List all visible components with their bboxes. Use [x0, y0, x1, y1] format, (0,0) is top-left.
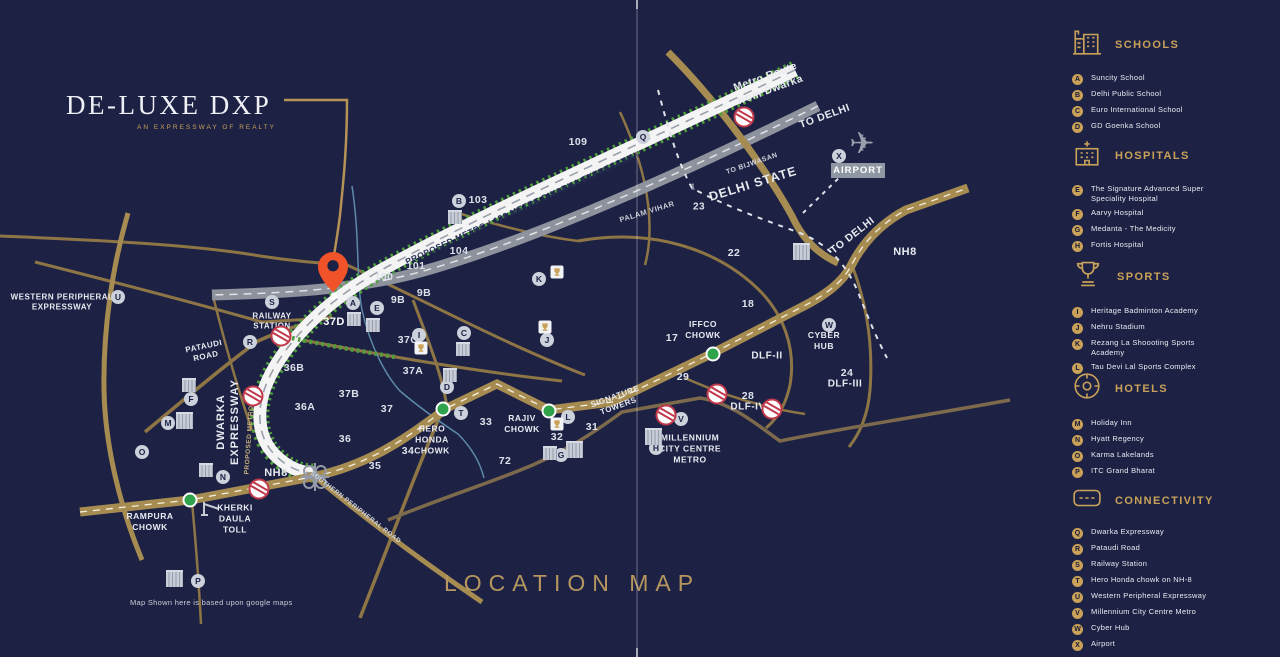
legend-title: CONNECTIVITY	[1115, 495, 1214, 507]
legend-item-label: Heritage Badminton Academy	[1091, 306, 1198, 316]
sector-label: 18	[742, 298, 754, 310]
map-marker: M	[161, 416, 175, 430]
western-peripheral-label: WESTERN PERIPHERAL EXPRESSWAY	[11, 293, 114, 314]
legend-key-badge: O	[1072, 451, 1083, 462]
legend-item: EThe Signature Advanced Super Speciality…	[1072, 184, 1272, 204]
legend-item-label: Delhi Public School	[1091, 89, 1161, 99]
legend-item-label: Railway Station	[1091, 559, 1147, 569]
legend-key-badge: I	[1072, 307, 1083, 318]
legend-item: OKarma Lakelands	[1072, 450, 1272, 462]
dlf2-label: DLF-II	[751, 350, 782, 363]
building-icon	[456, 342, 470, 356]
trophy-icon	[1072, 259, 1104, 294]
legend-key-badge: G	[1072, 225, 1083, 236]
legend-item-label: Karma Lakelands	[1091, 450, 1154, 460]
legend-key-badge: W	[1072, 624, 1083, 635]
sector-label: 17	[666, 332, 678, 344]
legend-item: ASuncity School	[1072, 73, 1272, 85]
building-icon	[347, 312, 361, 326]
sector-label: 36	[339, 433, 351, 445]
legend-section-hospitals: HOSPITALS EThe Signature Advanced Super …	[1072, 139, 1272, 256]
legend-item: SRailway Station	[1072, 559, 1272, 571]
map-marker: D	[440, 380, 454, 394]
legend-item-label: Airport	[1091, 639, 1115, 649]
legend-item: RPataudi Road	[1072, 543, 1272, 555]
pataudi-road-label: PATAUDI ROAD	[185, 338, 226, 366]
dlf4-label: DLF-IV	[730, 401, 765, 414]
map-marker: O	[135, 445, 149, 459]
fold-tick	[636, 0, 638, 9]
legend-title: SCHOOLS	[1115, 39, 1179, 51]
sector-label: 35	[369, 460, 381, 472]
legend-item: GMedanta - The Medicity	[1072, 224, 1272, 236]
airplane-icon: ✈	[849, 127, 874, 162]
page-title: LOCATION MAP	[444, 570, 700, 597]
legend-item-label: Western Peripheral Expressway	[1091, 591, 1206, 601]
sector-label: 32	[551, 431, 563, 443]
trophy-icon	[551, 418, 564, 431]
kherki-daula-toll-label: KHERKI DAULA TOLL	[217, 502, 253, 535]
sector-label: 9B	[391, 294, 405, 306]
legend-section-connectivity: CONNECTIVITY QDwarka Expressway RPataudi…	[1072, 486, 1272, 655]
sector-label: 37A	[403, 365, 423, 377]
legend-title: SPORTS	[1117, 271, 1171, 283]
building-icon	[366, 318, 380, 332]
expressway-banner-label: PROPOSED METRO / 150 METRE DWARKA EXPRES…	[404, 148, 642, 267]
pin-sector-label: 37D	[323, 316, 344, 328]
map-marker: S	[265, 295, 279, 309]
sector-label: 24	[841, 367, 853, 379]
dlf3-label: DLF-III	[828, 378, 863, 391]
building-icon	[443, 368, 457, 382]
crossing-icon	[243, 386, 264, 407]
trophy-icon	[551, 266, 564, 279]
legend-item: CEuro International School	[1072, 105, 1272, 117]
crossing-icon	[271, 326, 292, 347]
legend-item: PITC Grand Bharat	[1072, 466, 1272, 478]
building-icon	[448, 210, 462, 224]
map-marker: N	[216, 470, 230, 484]
legend-title: HOTELS	[1115, 383, 1168, 395]
legend-item-label: Millennium City Centre Metro	[1091, 607, 1196, 617]
dwarka-expressway-label-2: EXPRESSWAY	[228, 379, 242, 465]
legend-item: XAirport	[1072, 639, 1272, 651]
building-icon	[566, 441, 583, 458]
legend-item-label: Euro International School	[1091, 105, 1183, 115]
chowk-dot	[542, 404, 557, 419]
legend-key-badge: H	[1072, 241, 1083, 252]
legend-item-label: GD Goenka School	[1091, 121, 1160, 131]
building-icon	[793, 243, 810, 260]
sector-label: 37	[381, 403, 393, 415]
building-icon	[199, 463, 213, 477]
legend-key-badge: Q	[1072, 528, 1083, 539]
map-marker: X	[832, 149, 846, 163]
legend-key-badge: U	[1072, 592, 1083, 603]
legend-item: BDelhi Public School	[1072, 89, 1272, 101]
sector-label: 9B	[417, 287, 431, 299]
building-icon	[645, 428, 662, 445]
hero-honda-chowk-label: HERO HONDA CHOWK	[414, 423, 450, 456]
sector-label: 34	[402, 445, 414, 457]
rajiv-chowk-label: RAJIV CHOWK	[504, 413, 540, 435]
sector-label: 72	[499, 455, 511, 467]
sector-label: 104	[450, 245, 469, 257]
palam-vihar-label: PALAM VIHAR	[618, 199, 675, 225]
to-delhi-gray-label: TO DELHI	[798, 102, 852, 133]
map-marker: U	[111, 290, 125, 304]
legend-title: HOSPITALS	[1115, 150, 1190, 162]
legend-key-badge: C	[1072, 106, 1083, 117]
cyber-hub-label: CYBER HUB	[808, 330, 840, 352]
map-marker: P	[191, 574, 205, 588]
legend-item: QDwarka Expressway	[1072, 527, 1272, 539]
legend-item-label: Dwarka Expressway	[1091, 527, 1164, 537]
trophy-icon	[539, 321, 552, 334]
page-fold-line	[636, 0, 638, 657]
legend-section-sports: SPORTS IHeritage Badminton Academy JNehr…	[1072, 259, 1272, 378]
legend-key-badge: P	[1072, 467, 1083, 478]
legend-section-schools: SCHOOLS ASuncity School BDelhi Public Sc…	[1072, 28, 1272, 137]
crossing-icon	[762, 399, 783, 420]
legend-item-label: Holiday Inn	[1091, 418, 1132, 428]
sector-label: 29	[677, 371, 689, 383]
trophy-icon	[415, 342, 428, 355]
sector-label: 22	[728, 247, 740, 259]
map-marker: W	[822, 318, 836, 332]
building-icon	[166, 570, 183, 587]
rampura-chowk-label: RAMPURA CHOWK	[127, 511, 174, 533]
legend-key-badge: K	[1072, 339, 1083, 350]
map-marker: E	[370, 301, 384, 315]
legend-key-badge: N	[1072, 435, 1083, 446]
chowk-dot	[183, 493, 198, 508]
legend-item: FAarvy Hospital	[1072, 208, 1272, 220]
fold-tick	[636, 648, 638, 657]
map-marker: J	[540, 333, 554, 347]
dwarka-expressway-label-1: DWARKA	[214, 394, 228, 450]
legend-item: MHoliday Inn	[1072, 418, 1272, 430]
legend-item-label: Suncity School	[1091, 73, 1145, 83]
legend-key-badge: B	[1072, 90, 1083, 101]
legend-item-label: Hyatt Regency	[1091, 434, 1144, 444]
sector-label: 33	[480, 416, 492, 428]
school-building-icon	[1072, 28, 1102, 61]
brand-title: DE-LUXE DXP	[66, 90, 276, 121]
map-marker: F	[184, 392, 198, 406]
legend-item-label: Rezang La Shoooting Sports Academy	[1091, 338, 1221, 358]
sector-label: 31	[586, 421, 598, 433]
legend-item: UWestern Peripheral Expressway	[1072, 591, 1272, 603]
legend-item-label: Nehru Stadium	[1091, 322, 1145, 332]
legend-item: VMillennium City Centre Metro	[1072, 607, 1272, 619]
legend-item: KRezang La Shoooting Sports Academy	[1072, 338, 1272, 358]
nh8-delhi-label: NH8	[893, 245, 917, 259]
map-marker: C	[457, 326, 471, 340]
legend-key-badge: F	[1072, 209, 1083, 220]
sector-label: 36A	[295, 401, 315, 413]
legend-item-label: The Signature Advanced Super Speciality …	[1091, 184, 1221, 204]
legend-item: NHyatt Regency	[1072, 434, 1272, 446]
sector-label: 37B	[339, 388, 359, 400]
chowk-dot	[706, 347, 721, 362]
legend-key-badge: T	[1072, 576, 1083, 587]
legend-item: IHeritage Badminton Academy	[1072, 306, 1272, 318]
crossing-icon	[249, 479, 270, 500]
sector-label: 23	[693, 202, 705, 213]
legend-item: DGD Goenka School	[1072, 121, 1272, 133]
sector-label: 109	[569, 136, 588, 148]
sector-label: 103	[469, 194, 488, 206]
legend-item: HFortis Hospital	[1072, 240, 1272, 252]
legend-item-label: Medanta - The Medicity	[1091, 224, 1176, 234]
legend-key-badge: X	[1072, 640, 1083, 651]
legend-key-badge: E	[1072, 185, 1083, 196]
millennium-metro-label: MILLENNIUM CITY CENTRE METRO	[659, 432, 721, 465]
building-icon	[543, 446, 557, 460]
map-marker: A	[346, 296, 360, 310]
metro-route-label: Metro Route from Dwarka	[731, 59, 805, 108]
legend-item-label: Pataudi Road	[1091, 543, 1140, 553]
sector-label: 36B	[284, 362, 304, 374]
legend-key-badge: M	[1072, 419, 1083, 430]
map-marker: I	[412, 328, 426, 342]
legend-key-badge: D	[1072, 122, 1083, 133]
iffco-chowk-label: IFFCO CHOWK	[685, 319, 721, 341]
legend-item: JNehru Stadium	[1072, 322, 1272, 334]
map-marker: B	[452, 194, 466, 208]
sector-label: 1	[691, 183, 696, 192]
map-disclaimer: Map Shown here is based upon google maps	[130, 598, 293, 607]
building-icon	[182, 378, 196, 392]
legend-section-hotels: HOTELS MHoliday Inn NHyatt Regency OKarm…	[1072, 371, 1272, 482]
nh8-toll-label: NH8	[264, 466, 288, 480]
crossing-icon	[656, 405, 677, 426]
map-marker: K	[532, 272, 546, 286]
sector-label: 100	[375, 271, 394, 283]
legend-item: THero Honda chowk on NH-8	[1072, 575, 1272, 587]
crossing-icon	[734, 107, 755, 128]
hotel-compass-icon	[1072, 371, 1102, 406]
map-marker: T	[454, 406, 468, 420]
legend-item-label: Aarvy Hospital	[1091, 208, 1144, 218]
legend-key-badge: S	[1072, 560, 1083, 571]
road-icon	[1072, 486, 1102, 515]
legend-item-label: Fortis Hospital	[1091, 240, 1143, 250]
legend-item-label: Cyber Hub	[1091, 623, 1130, 633]
legend-key-badge: V	[1072, 608, 1083, 619]
map-marker: R	[243, 335, 257, 349]
southern-peripheral-label: SOUTHERN PERIPHERAL ROAD	[308, 470, 402, 546]
legend-item: WCyber Hub	[1072, 623, 1272, 635]
crossing-icon	[707, 384, 728, 405]
legend-item-label: ITC Grand Bharat	[1091, 466, 1155, 476]
proposed-metro-label: PROPOSED METRO	[243, 405, 256, 475]
legend-key-badge: R	[1072, 544, 1083, 555]
pin-ground-dot	[331, 293, 338, 300]
sector-label: 101	[407, 260, 426, 272]
brand-logo: DE-LUXE DXP AN EXPRESSWAY OF REALTY	[66, 90, 276, 131]
legend-key-badge: J	[1072, 323, 1083, 334]
chowk-dot	[436, 402, 451, 417]
airport-badge: AIRPORT	[831, 163, 885, 178]
legend-key-badge: A	[1072, 74, 1083, 85]
to-delhi-nh8-label: TO DELHI	[828, 214, 878, 257]
building-icon	[176, 412, 193, 429]
map-marker: Q	[636, 130, 650, 144]
brand-tagline: AN EXPRESSWAY OF REALTY	[66, 124, 276, 131]
sector-label: 28	[742, 390, 754, 402]
delhi-state-label: DELHI STATE	[707, 163, 799, 205]
legend-item-label: Hero Honda chowk on NH-8	[1091, 575, 1192, 585]
hospital-building-icon	[1072, 139, 1102, 172]
project-location-pin	[318, 252, 348, 297]
